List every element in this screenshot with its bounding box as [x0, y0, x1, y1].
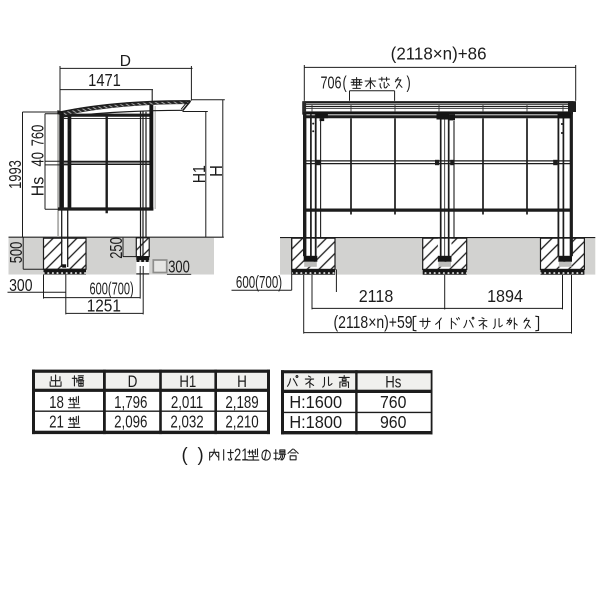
- svg-text:H: H: [237, 373, 247, 392]
- svg-text:Hs: Hs: [385, 373, 401, 392]
- svg-text:1,796: 1,796: [114, 393, 147, 412]
- svg-text:H:1800: H:1800: [289, 411, 342, 432]
- svg-text:2,011: 2,011: [171, 393, 203, 412]
- svg-text:2,189: 2,189: [225, 393, 258, 412]
- svg-text:): ): [407, 74, 411, 94]
- svg-text:H: H: [207, 165, 226, 177]
- svg-text:1894: 1894: [487, 286, 523, 306]
- svg-text:1251: 1251: [87, 297, 121, 316]
- svg-text:H1: H1: [179, 372, 196, 391]
- svg-text:760: 760: [380, 392, 406, 412]
- svg-text:D: D: [128, 373, 138, 392]
- svg-text:Hs: Hs: [28, 177, 48, 197]
- svg-text:H:1600: H:1600: [289, 391, 342, 412]
- svg-text:(: (: [343, 74, 347, 94]
- svg-text:D: D: [120, 53, 131, 70]
- svg-text:1993: 1993: [6, 160, 25, 189]
- svg-text:1471: 1471: [88, 71, 121, 90]
- svg-text:): ): [198, 445, 204, 467]
- svg-text:300: 300: [9, 277, 33, 296]
- svg-text:500: 500: [7, 242, 26, 264]
- svg-text:960: 960: [380, 412, 406, 432]
- svg-text:(: (: [182, 445, 189, 467]
- svg-text:2118: 2118: [359, 286, 394, 306]
- svg-text:2,096: 2,096: [114, 413, 147, 432]
- svg-text:40: 40: [29, 152, 48, 166]
- svg-text:706: 706: [321, 74, 342, 94]
- svg-text:760: 760: [29, 125, 48, 147]
- svg-text:2,210: 2,210: [225, 413, 258, 432]
- svg-text:21: 21: [234, 446, 248, 465]
- svg-text:250: 250: [107, 237, 126, 259]
- svg-text:(2118×n)+86: (2118×n)+86: [391, 43, 487, 63]
- svg-text:21: 21: [49, 413, 64, 432]
- svg-text:(2118×n)+59: (2118×n)+59: [333, 313, 412, 332]
- svg-text:600(700): 600(700): [236, 274, 282, 293]
- svg-text:18: 18: [49, 393, 64, 412]
- svg-text:2,032: 2,032: [170, 413, 203, 432]
